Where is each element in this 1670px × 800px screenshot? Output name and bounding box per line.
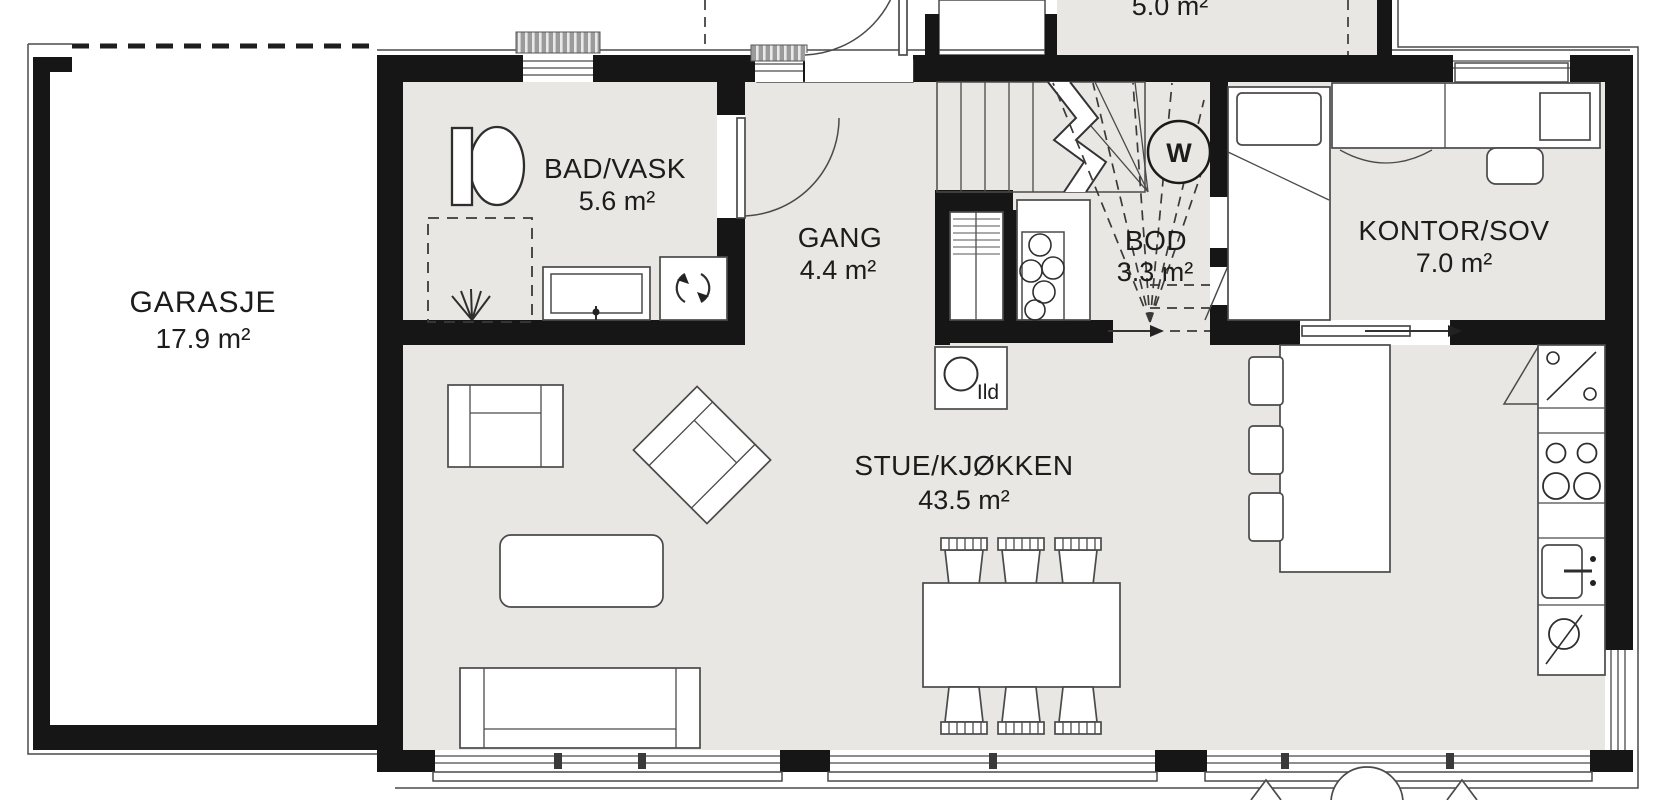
bar-stool <box>1249 426 1283 474</box>
washing-machine <box>660 257 727 320</box>
fireplace: Ild <box>935 347 1007 409</box>
porch-pier-right <box>1377 0 1392 58</box>
dining-set <box>923 538 1120 734</box>
kitchen-island <box>1280 345 1390 572</box>
floor-plan: W Ild <box>0 0 1670 800</box>
bath-faucet-knob <box>593 309 600 316</box>
dining-chair <box>998 687 1044 734</box>
office-label: KONTOR/SOV <box>1358 215 1549 246</box>
chair-back <box>1447 780 1477 800</box>
porch-area-label: 5.0 m² <box>1132 0 1209 21</box>
porch-floor <box>1057 0 1377 58</box>
garage-wall-left <box>33 57 50 747</box>
entrance-landing <box>939 0 1045 55</box>
kitchen-counter <box>1538 345 1605 675</box>
coffee-table <box>500 535 663 607</box>
window-c-sill <box>1205 772 1592 781</box>
bath-wall-bottom <box>403 320 745 345</box>
storage-label: BOD <box>1125 225 1187 256</box>
window-a-gap <box>435 750 780 772</box>
side-window-sill <box>751 45 807 61</box>
wall-left <box>377 55 403 772</box>
storage-door-gap1 <box>1210 197 1228 248</box>
bath-door-leaf <box>737 118 745 218</box>
dining-chairs-bottom <box>941 687 1101 734</box>
sofa <box>460 668 700 748</box>
entrance-door-leaf <box>899 0 907 55</box>
garage-area: 17.9 m² <box>156 323 251 354</box>
entrance-door-gap <box>805 53 913 82</box>
bathroom-area: 5.6 m² <box>579 186 656 216</box>
dining-chair <box>998 538 1044 585</box>
dining-chair <box>941 687 987 734</box>
bar-stools <box>1249 357 1283 541</box>
window-b-sill <box>828 772 1157 781</box>
entrance-door-swing-arc <box>805 0 901 55</box>
closet-wall-bottom <box>935 320 1113 343</box>
window-c-gap <box>1207 750 1590 772</box>
bar-stool <box>1249 493 1283 541</box>
dining-chair <box>1055 687 1101 734</box>
garage <box>33 57 403 750</box>
dining-chairs-top <box>941 538 1101 585</box>
dining-chair <box>941 538 987 585</box>
dining-table <box>923 583 1120 687</box>
fireplace-label: Ild <box>977 381 999 404</box>
porch-pier-left <box>925 14 939 55</box>
bed-pillow <box>1237 93 1321 145</box>
storage-area: 3.3 m² <box>1117 257 1194 287</box>
bar-stool <box>1249 357 1283 405</box>
hallway-area: 4.4 m² <box>800 255 877 285</box>
chair-back <box>1251 780 1281 800</box>
closet-wall-mid <box>1003 210 1017 327</box>
bath-window-sill <box>516 32 600 53</box>
desk-shelf <box>1540 93 1590 140</box>
armchair-1 <box>448 385 563 467</box>
garage-label: GARASJE <box>129 286 276 319</box>
closet-wall-top <box>935 190 1013 212</box>
garage-outline <box>28 44 403 754</box>
desk-chair <box>1487 148 1543 184</box>
window-a-sill <box>433 772 782 781</box>
porch-pier-mid <box>1045 14 1057 55</box>
floor-plan-canvas: W Ild <box>0 0 1670 800</box>
hallway-label: GANG <box>798 222 882 253</box>
right-wall-window-gap <box>1605 650 1633 750</box>
toilet-bowl <box>470 127 524 205</box>
bathroom-label: BAD/VASK <box>544 153 686 184</box>
living-label: STUE/KJØKKEN <box>854 450 1073 481</box>
garage-wall-bottom <box>33 725 403 750</box>
toilet-tank <box>452 128 472 205</box>
dining-chair <box>1055 538 1101 585</box>
office-area: 7.0 m² <box>1416 248 1493 278</box>
hall-closet <box>950 200 1090 320</box>
water-heater-label: W <box>1166 138 1192 168</box>
living-area: 43.5 m² <box>918 485 1010 515</box>
